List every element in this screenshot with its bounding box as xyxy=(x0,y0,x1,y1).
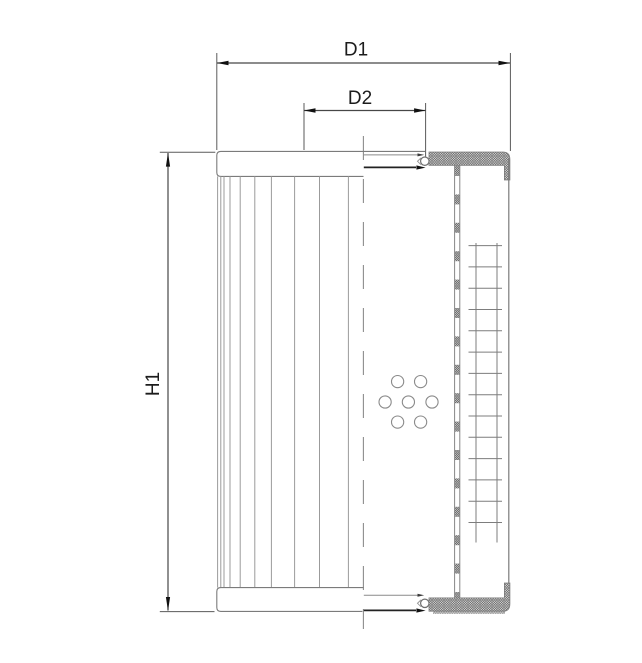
svg-text:D2: D2 xyxy=(348,88,372,109)
svg-text:H1: H1 xyxy=(143,372,164,396)
svg-text:D1: D1 xyxy=(344,40,368,61)
